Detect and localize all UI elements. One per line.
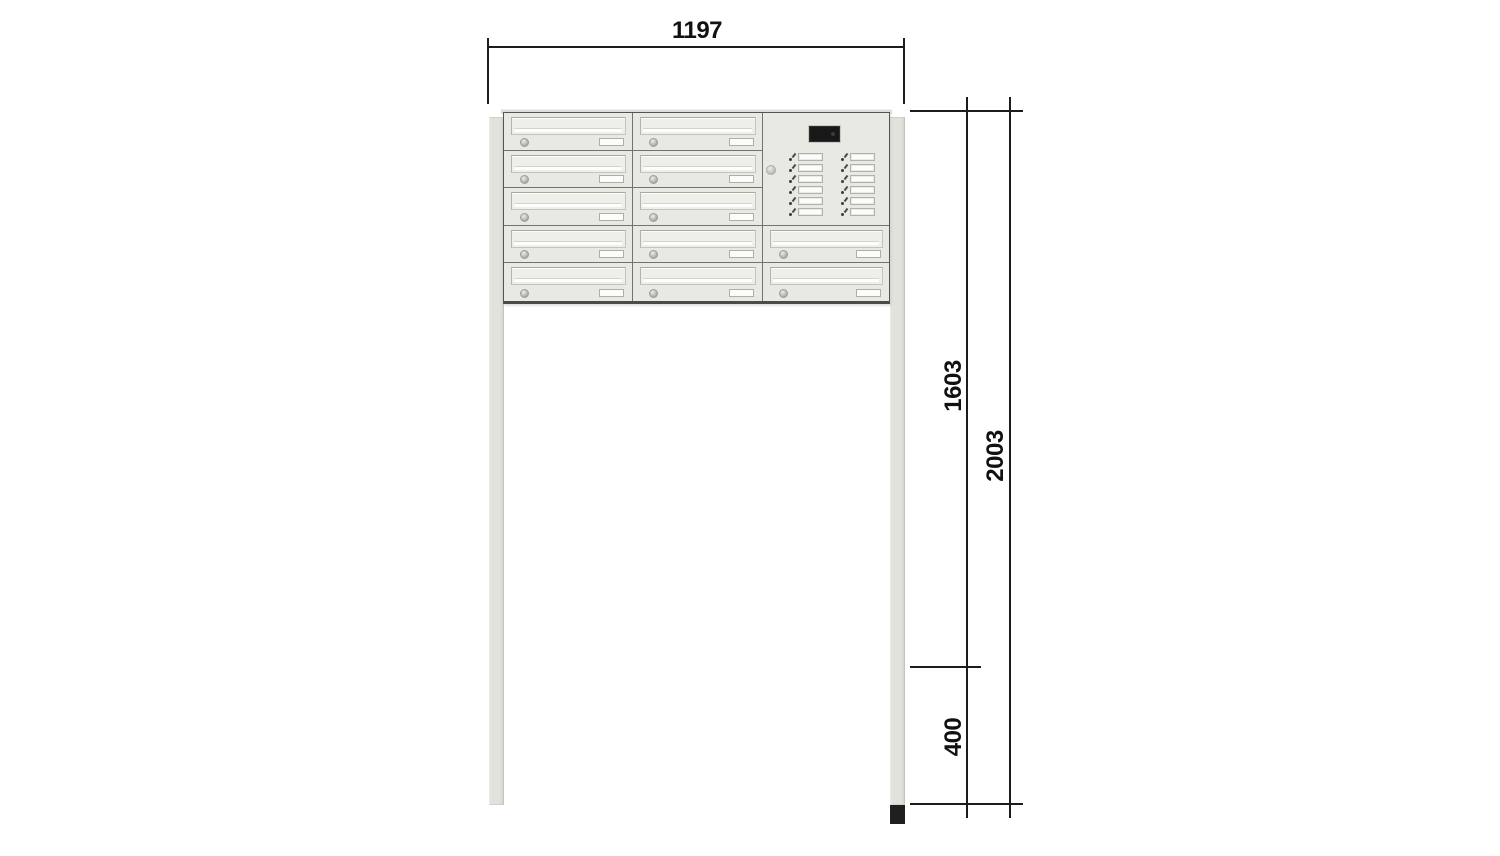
- name-plate: [729, 138, 754, 146]
- dimension-anchor-depth-label: 400: [942, 718, 966, 757]
- lock-cylinder-icon: [520, 289, 529, 298]
- mail-slot: [514, 128, 622, 132]
- bell-name-plate: [850, 164, 875, 172]
- bell-push-icon: [789, 164, 795, 172]
- bell-name-plate: [798, 186, 823, 194]
- name-plate: [856, 250, 881, 258]
- bell-name-plate: [850, 197, 875, 205]
- name-plate: [599, 213, 624, 221]
- lock-cylinder-icon: [779, 250, 788, 259]
- mail-slot: [514, 203, 622, 207]
- left-post: [489, 117, 504, 805]
- dimension-width-label: 1197: [597, 19, 797, 43]
- mailbox-flap: [511, 267, 626, 285]
- mailbox-flap: [640, 230, 756, 248]
- bell-push-icon: [789, 197, 795, 205]
- bell-push-icon: [841, 197, 847, 205]
- bell-button-row: [789, 153, 823, 161]
- bell-button-column: [841, 153, 875, 216]
- mailbox-unit: [503, 112, 890, 304]
- mailbox-flap: [770, 230, 883, 248]
- lock-cylinder-icon: [649, 250, 658, 259]
- mailbox: [633, 188, 763, 226]
- extension-line-top-right: [903, 38, 905, 104]
- bell-name-plate: [798, 153, 823, 161]
- mailbox: [763, 226, 889, 264]
- mailbox-flap: [640, 267, 756, 285]
- bell-push-icon: [841, 164, 847, 172]
- mailbox: [504, 188, 633, 226]
- bell-push-icon: [789, 208, 795, 216]
- bell-button-row: [841, 175, 875, 183]
- bell-button-row: [841, 164, 875, 172]
- mailbox: [633, 226, 763, 264]
- mail-slot: [643, 278, 752, 282]
- mailbox: [763, 263, 889, 301]
- bell-push-icon: [841, 153, 847, 161]
- mailbox: [504, 263, 633, 301]
- intercom-panel: [763, 113, 889, 226]
- bell-button-row: [789, 186, 823, 194]
- mail-slot: [514, 278, 622, 282]
- mailbox-flap: [640, 192, 756, 210]
- bell-button-row: [841, 153, 875, 161]
- bell-button-row: [789, 197, 823, 205]
- lock-cylinder-icon: [520, 250, 529, 259]
- mailbox: [633, 263, 763, 301]
- lock-cylinder-icon: [649, 213, 658, 222]
- intercom-display: [809, 126, 840, 142]
- bell-name-plate: [798, 164, 823, 172]
- dimension-height-inner-line: [966, 97, 968, 818]
- bell-button-row: [789, 175, 823, 183]
- bell-name-plate: [850, 208, 875, 216]
- mailbox-flap: [770, 267, 883, 285]
- mail-slot: [514, 166, 622, 170]
- name-plate: [729, 289, 754, 297]
- bell-button-row: [789, 164, 823, 172]
- name-plate: [856, 289, 881, 297]
- lock-cylinder-icon: [520, 213, 529, 222]
- name-plate: [729, 213, 754, 221]
- right-post-anchor-foot: [890, 805, 905, 824]
- bell-button-row: [789, 208, 823, 216]
- mailbox-flap: [511, 117, 626, 135]
- dimension-width-line: [487, 46, 905, 48]
- panel-lock-icon: [766, 165, 776, 175]
- bell-push-icon: [789, 175, 795, 183]
- bell-name-plate: [850, 175, 875, 183]
- mailbox: [633, 151, 763, 189]
- mailbox-grid: [504, 113, 889, 301]
- name-plate: [599, 289, 624, 297]
- lock-cylinder-icon: [779, 289, 788, 298]
- bell-name-plate: [850, 153, 875, 161]
- mailbox: [504, 226, 633, 264]
- extension-line-top-left: [487, 38, 489, 104]
- bell-push-icon: [841, 208, 847, 216]
- mail-slot: [643, 128, 752, 132]
- mailbox: [504, 113, 633, 151]
- mailbox-flap: [640, 117, 756, 135]
- name-plate: [729, 175, 754, 183]
- name-plate: [599, 175, 624, 183]
- bell-button-row: [841, 186, 875, 194]
- name-plate: [599, 250, 624, 258]
- mail-slot: [514, 241, 622, 245]
- mail-slot: [643, 241, 752, 245]
- mailbox-flap: [511, 192, 626, 210]
- bell-push-icon: [841, 175, 847, 183]
- mail-slot: [773, 241, 879, 245]
- name-plate: [599, 138, 624, 146]
- lock-cylinder-icon: [649, 175, 658, 184]
- bell-button-column: [789, 153, 823, 216]
- bell-button-row: [841, 197, 875, 205]
- dimension-total-height-label: 2003: [984, 430, 1008, 481]
- mailbox-flap: [640, 155, 756, 173]
- mailbox-flap: [511, 230, 626, 248]
- lock-cylinder-icon: [520, 138, 529, 147]
- mail-slot: [643, 166, 752, 170]
- mail-slot: [643, 203, 752, 207]
- bell-button-row: [841, 208, 875, 216]
- bell-push-icon: [789, 186, 795, 194]
- bell-name-plate: [850, 186, 875, 194]
- extension-line-ground: [910, 666, 981, 668]
- mailbox: [633, 113, 763, 151]
- dimension-height-above-ground-label: 1603: [942, 360, 966, 411]
- mail-slot: [773, 278, 879, 282]
- lock-cylinder-icon: [520, 175, 529, 184]
- mailbox: [504, 151, 633, 189]
- name-plate: [729, 250, 754, 258]
- lock-cylinder-icon: [649, 289, 658, 298]
- bell-name-plate: [798, 175, 823, 183]
- bell-push-icon: [841, 186, 847, 194]
- bell-name-plate: [798, 197, 823, 205]
- technical-drawing-canvas: 1197 1603 2003 400: [0, 0, 1500, 856]
- dimension-height-outer-line: [1009, 97, 1011, 818]
- mailbox-flap: [511, 155, 626, 173]
- lock-cylinder-icon: [649, 138, 658, 147]
- bell-name-plate: [798, 208, 823, 216]
- bell-push-icon: [789, 153, 795, 161]
- right-post: [890, 117, 905, 805]
